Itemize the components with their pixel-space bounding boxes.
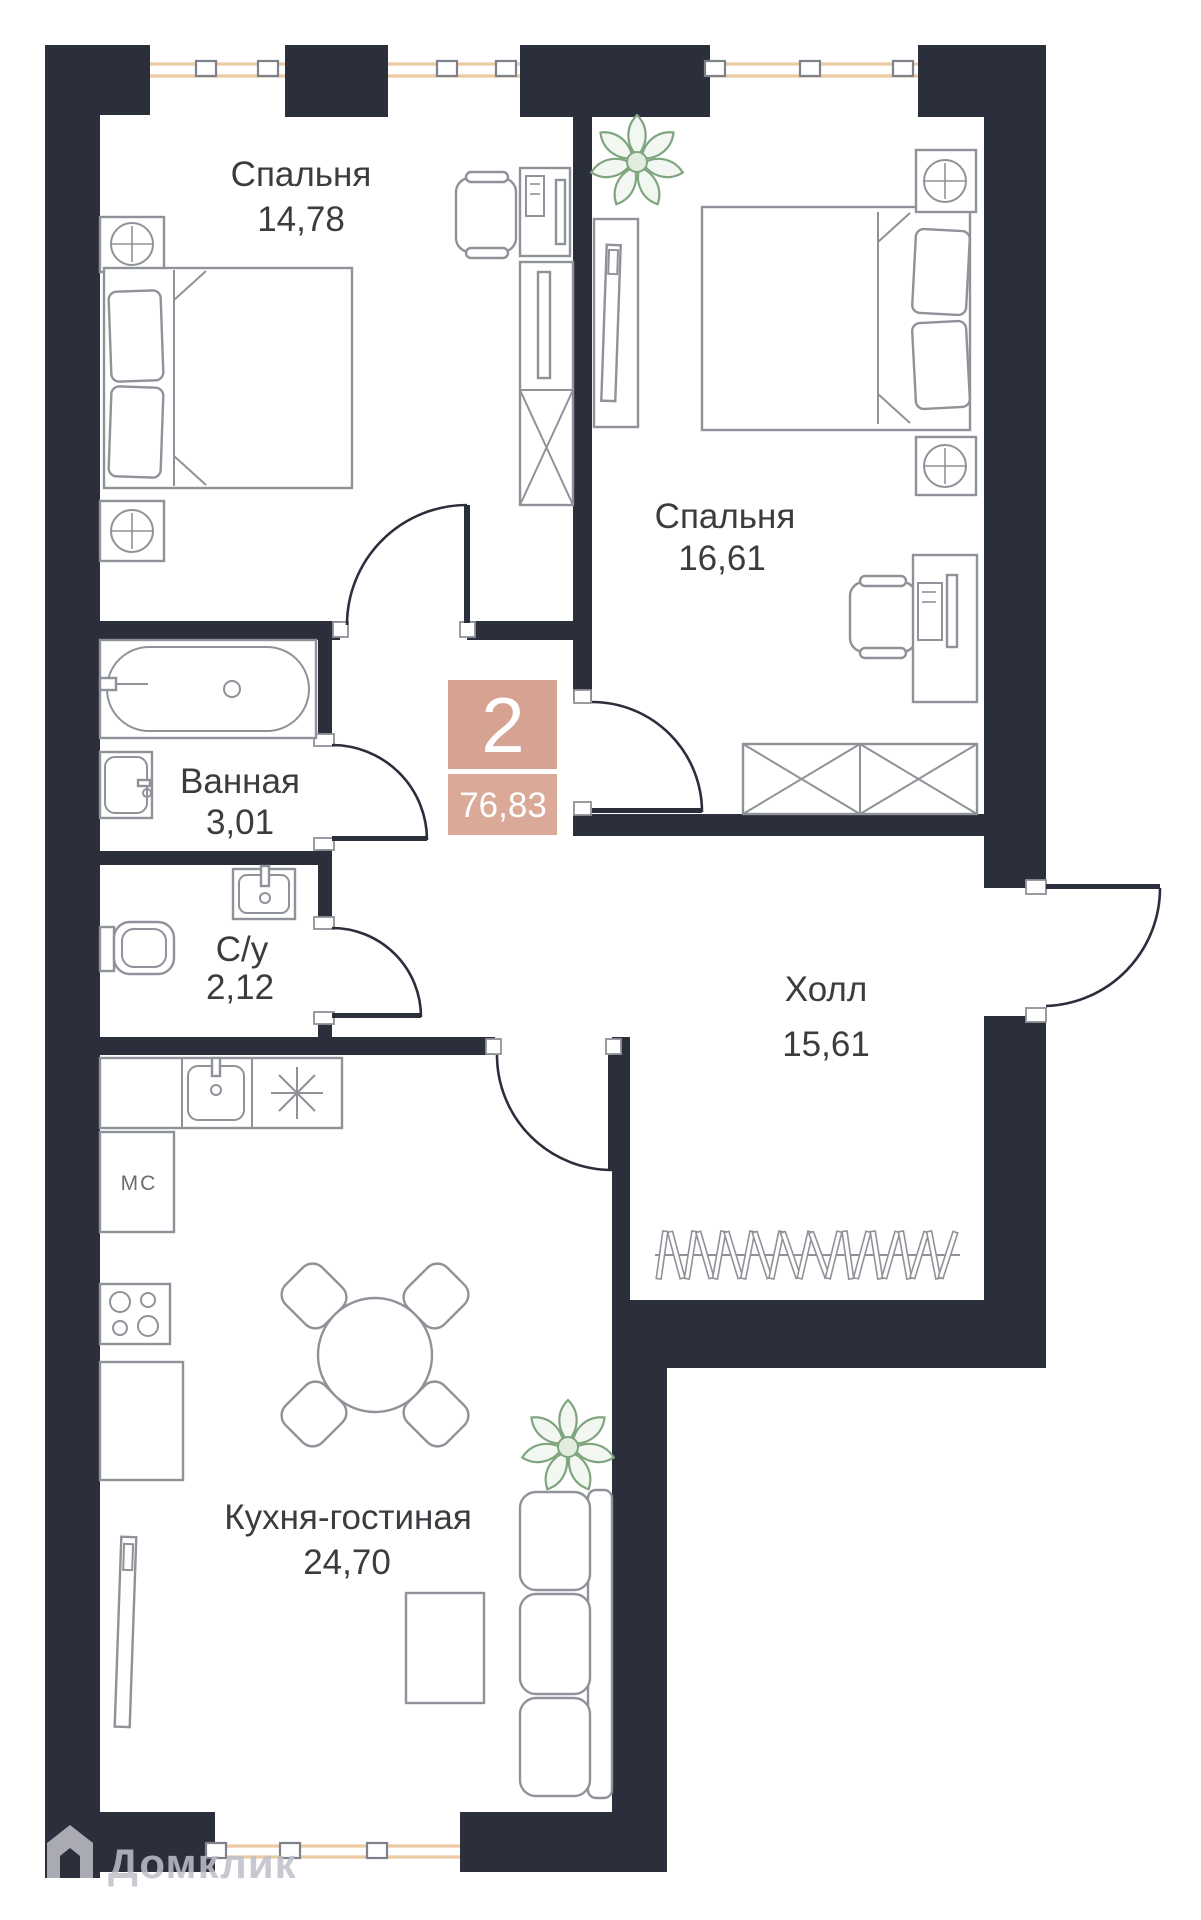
nightstand-with-lamp [100, 501, 164, 561]
nightstand-with-lamp [100, 217, 164, 272]
desk-with-computer [913, 555, 977, 702]
room-area-bedroom-1: 14,78 [257, 200, 345, 239]
wc-sink [233, 866, 295, 919]
room-area-bathroom: 3,01 [206, 803, 274, 842]
tv-console [594, 219, 638, 427]
badge-rooms-count: 2 [481, 681, 524, 769]
room-label-bedroom-1: Спальня [231, 155, 372, 194]
kitchen-counter [100, 1058, 342, 1128]
nightstand-with-lamp [916, 437, 976, 495]
floor-plan: МС [0, 0, 1201, 1920]
tv-panel [115, 1537, 137, 1727]
mc-label: МС [121, 1172, 158, 1195]
hall-fixtures [655, 1231, 960, 1279]
watermark-text: Домклик [108, 1840, 297, 1887]
room-area-wc: 2,12 [206, 968, 274, 1007]
bedroom-1-door [333, 505, 475, 637]
room-label-kitchen-living: Кухня-гостиная [224, 1498, 472, 1537]
double-bed [104, 268, 352, 488]
washing-machine-cabinet: МС [100, 1132, 174, 1232]
bathtub [100, 640, 316, 738]
toilet [100, 922, 174, 974]
wc-door [314, 917, 421, 1024]
entrance-door [1026, 880, 1160, 1022]
wardrobe [520, 262, 573, 505]
desk-chair [850, 576, 916, 658]
floor-plan-page: МС [0, 0, 1201, 1920]
bathroom-door [314, 734, 427, 850]
double-bed [702, 207, 970, 430]
bathroom-sink [100, 752, 152, 818]
nightstand-with-lamp [916, 150, 976, 212]
sofa [520, 1490, 612, 1798]
room-label-bathroom: Ванная [180, 762, 300, 801]
room-area-bedroom-2: 16,61 [678, 539, 766, 578]
bedroom-2-door [574, 690, 702, 815]
room-label-hall: Холл [785, 970, 868, 1009]
kitchen-door [486, 1039, 621, 1170]
coffee-table [406, 1593, 484, 1703]
plant-icon [589, 115, 684, 208]
plant-icon [520, 1400, 615, 1493]
dining-table [276, 1258, 474, 1452]
room-label-bedroom-2: Спальня [655, 497, 796, 536]
hob [100, 1284, 170, 1344]
badge-total-area: 76,83 [459, 786, 547, 825]
desk-chair [456, 172, 516, 258]
low-wardrobe [743, 744, 977, 814]
area-badge: 2 76,83 [448, 680, 557, 835]
desk-with-computer [520, 168, 570, 256]
bedroom-2-furniture [594, 150, 977, 814]
room-label-wc: С/у [216, 930, 269, 969]
room-area-hall: 15,61 [782, 1025, 870, 1064]
room-area-kitchen-living: 24,70 [303, 1543, 391, 1582]
kitchen-cabinet [100, 1362, 183, 1480]
